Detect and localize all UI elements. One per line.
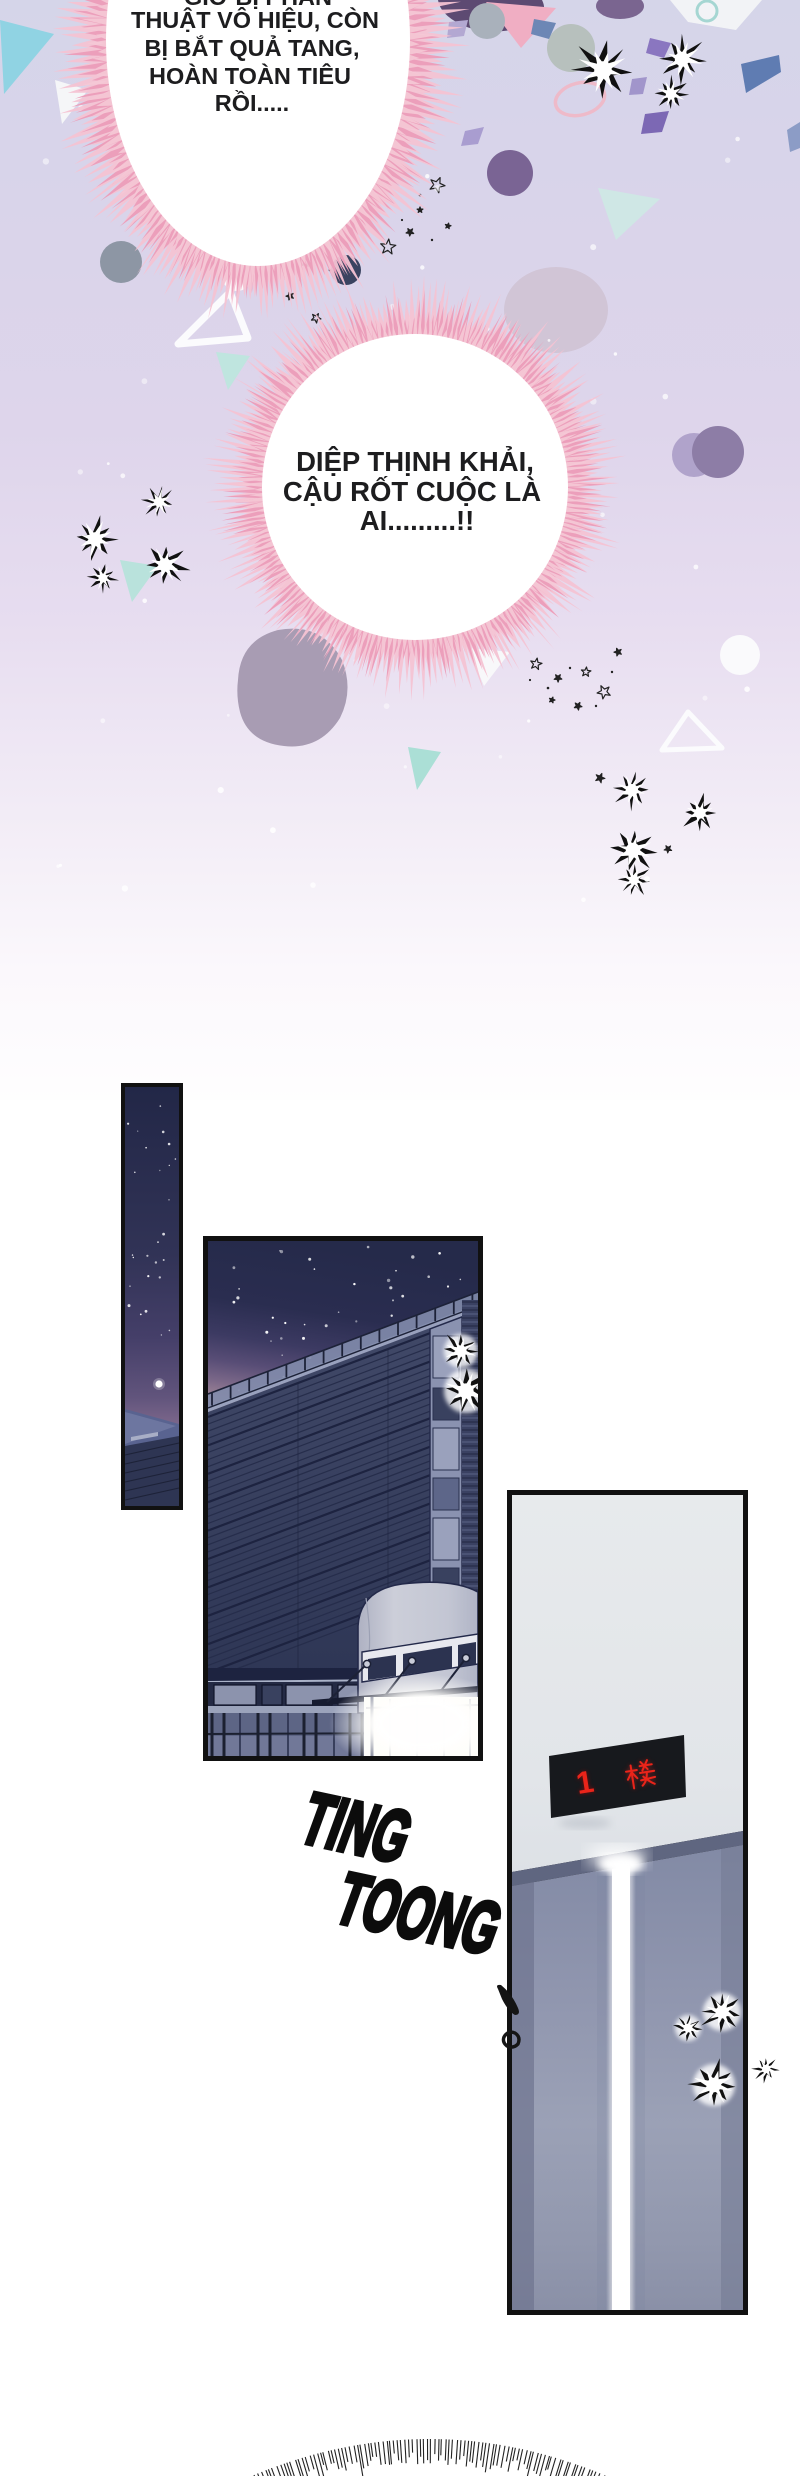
svg-text:CẬU RỐT CUỘC LÀ: CẬU RỐT CUỘC LÀ [283, 475, 541, 507]
svg-text:BỊ BẮT QUẢ TANG,: BỊ BẮT QUẢ TANG, [145, 33, 360, 61]
svg-text:RỒI.....: RỒI..... [215, 89, 289, 116]
svg-text:DIỆP THỊNH KHẢI,: DIỆP THỊNH KHẢI, [296, 445, 534, 477]
svg-text:THUẬT VÔ HIỆU, CÒN: THUẬT VÔ HIỆU, CÒN [131, 6, 379, 33]
svg-text:AI.........!!: AI.........!! [360, 505, 475, 536]
svg-text:HOÀN TOÀN TIÊU: HOÀN TOÀN TIÊU [149, 62, 351, 89]
